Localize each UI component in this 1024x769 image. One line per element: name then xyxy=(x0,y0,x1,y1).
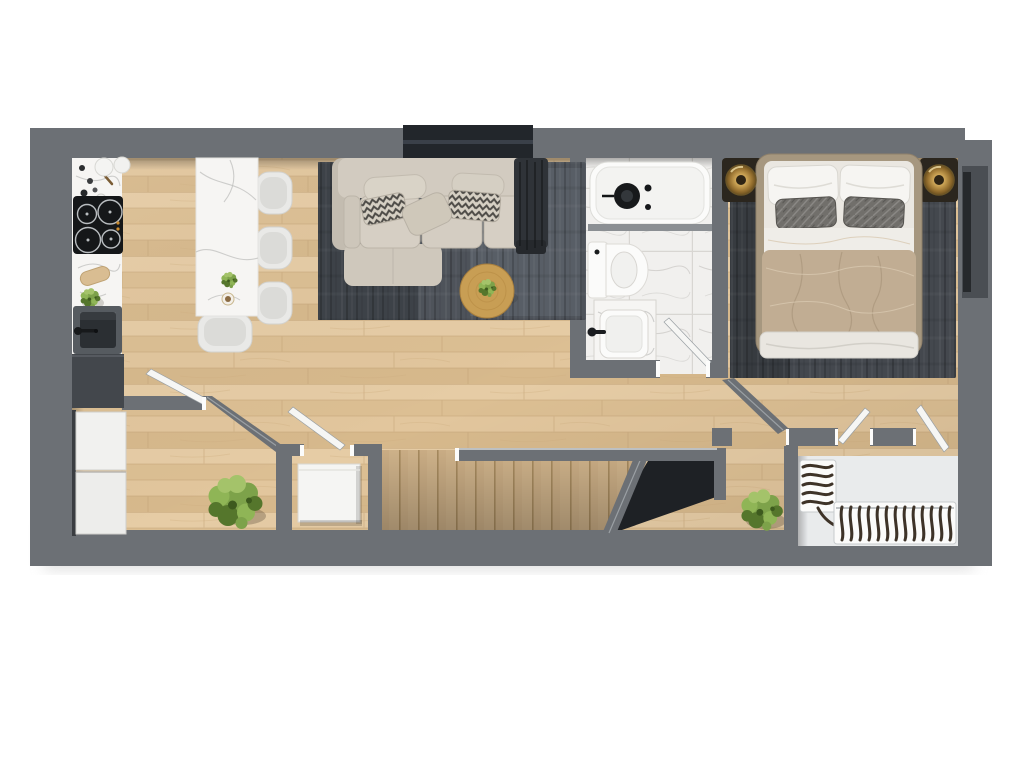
bathtub-ledge xyxy=(588,224,712,231)
jamb-7 xyxy=(835,429,838,445)
bathtub-drain xyxy=(645,204,651,210)
closet-wall-top-right xyxy=(354,444,370,456)
staircase-shading xyxy=(382,450,642,530)
jamb-2 xyxy=(656,361,660,377)
washer-cabinet xyxy=(298,464,360,522)
kitchen xyxy=(72,157,130,536)
dining-chair-1 xyxy=(256,172,292,214)
cooktop-indicator-2 xyxy=(116,227,119,230)
closet-wall-right xyxy=(368,444,382,530)
sink-faucet-spout xyxy=(94,329,98,333)
outer-wall-left xyxy=(30,128,72,566)
bed xyxy=(756,154,922,358)
cooktop xyxy=(73,196,123,254)
kitchen-sink xyxy=(73,306,122,354)
dining-chair-3 xyxy=(256,282,292,324)
washer-shadow-right xyxy=(356,466,362,524)
pillow-gray-right xyxy=(843,196,904,229)
closet-wall-left xyxy=(276,444,292,530)
dining-table xyxy=(196,158,258,316)
living-window-sill xyxy=(403,140,533,144)
jamb-10 xyxy=(455,448,459,461)
stair-guard-wall xyxy=(455,448,717,461)
entry-niche xyxy=(798,456,958,546)
bedroom-wall-piece-3 xyxy=(870,428,916,446)
appliance-back-shadow xyxy=(72,410,76,536)
bathroom-wall-bottom xyxy=(570,360,660,378)
toilet-seat xyxy=(611,252,637,288)
bathtub-tap xyxy=(645,185,652,192)
jamb-4 xyxy=(300,445,304,456)
tall-cabinet xyxy=(72,354,124,408)
niche-separator-wall xyxy=(784,446,798,546)
toilet-flush-button xyxy=(595,250,600,255)
jamb-8 xyxy=(870,429,873,445)
dining-area xyxy=(196,158,292,352)
bedroom xyxy=(722,154,958,378)
jamb-6 xyxy=(786,429,789,445)
vanity-faucet-base xyxy=(588,328,597,337)
sofa-chevron-pillow-right xyxy=(447,190,501,222)
dining-chair-2 xyxy=(256,227,292,269)
pillow-gray-left xyxy=(775,196,836,229)
appliance-unit-1 xyxy=(76,412,126,470)
bathroom xyxy=(586,158,712,374)
bathtub-fitting-center xyxy=(621,190,633,202)
cooktop-indicator xyxy=(116,221,119,224)
throw-blanket xyxy=(514,158,548,254)
jamb-3 xyxy=(706,361,710,377)
coffee-cup-inner xyxy=(225,296,231,302)
foot-blanket xyxy=(760,332,918,358)
canister-2 xyxy=(114,157,130,173)
bedroom-wall-piece-2 xyxy=(786,428,838,446)
duvet xyxy=(762,250,916,342)
bathtub-basin xyxy=(596,167,704,219)
appliance-unit-2 xyxy=(76,472,126,534)
bedroom-wall-piece-1 xyxy=(712,428,732,446)
sconce-lamp-right xyxy=(924,165,954,195)
jamb-1 xyxy=(202,397,206,410)
utility-closet xyxy=(298,464,362,526)
canister-1 xyxy=(95,158,113,176)
dining-chair-4 xyxy=(198,314,252,352)
vessel-sink-basin xyxy=(606,316,642,352)
floorplan-render xyxy=(0,0,1024,769)
sink-faucet-base xyxy=(74,327,82,335)
jamb-9 xyxy=(913,429,916,445)
jamb-5 xyxy=(350,445,354,456)
vanity xyxy=(588,300,657,370)
living-room xyxy=(318,158,586,320)
bedroom-window-slot xyxy=(963,172,971,292)
sconce-lamp-left xyxy=(726,165,756,195)
washer-shadow-bottom xyxy=(300,520,362,526)
